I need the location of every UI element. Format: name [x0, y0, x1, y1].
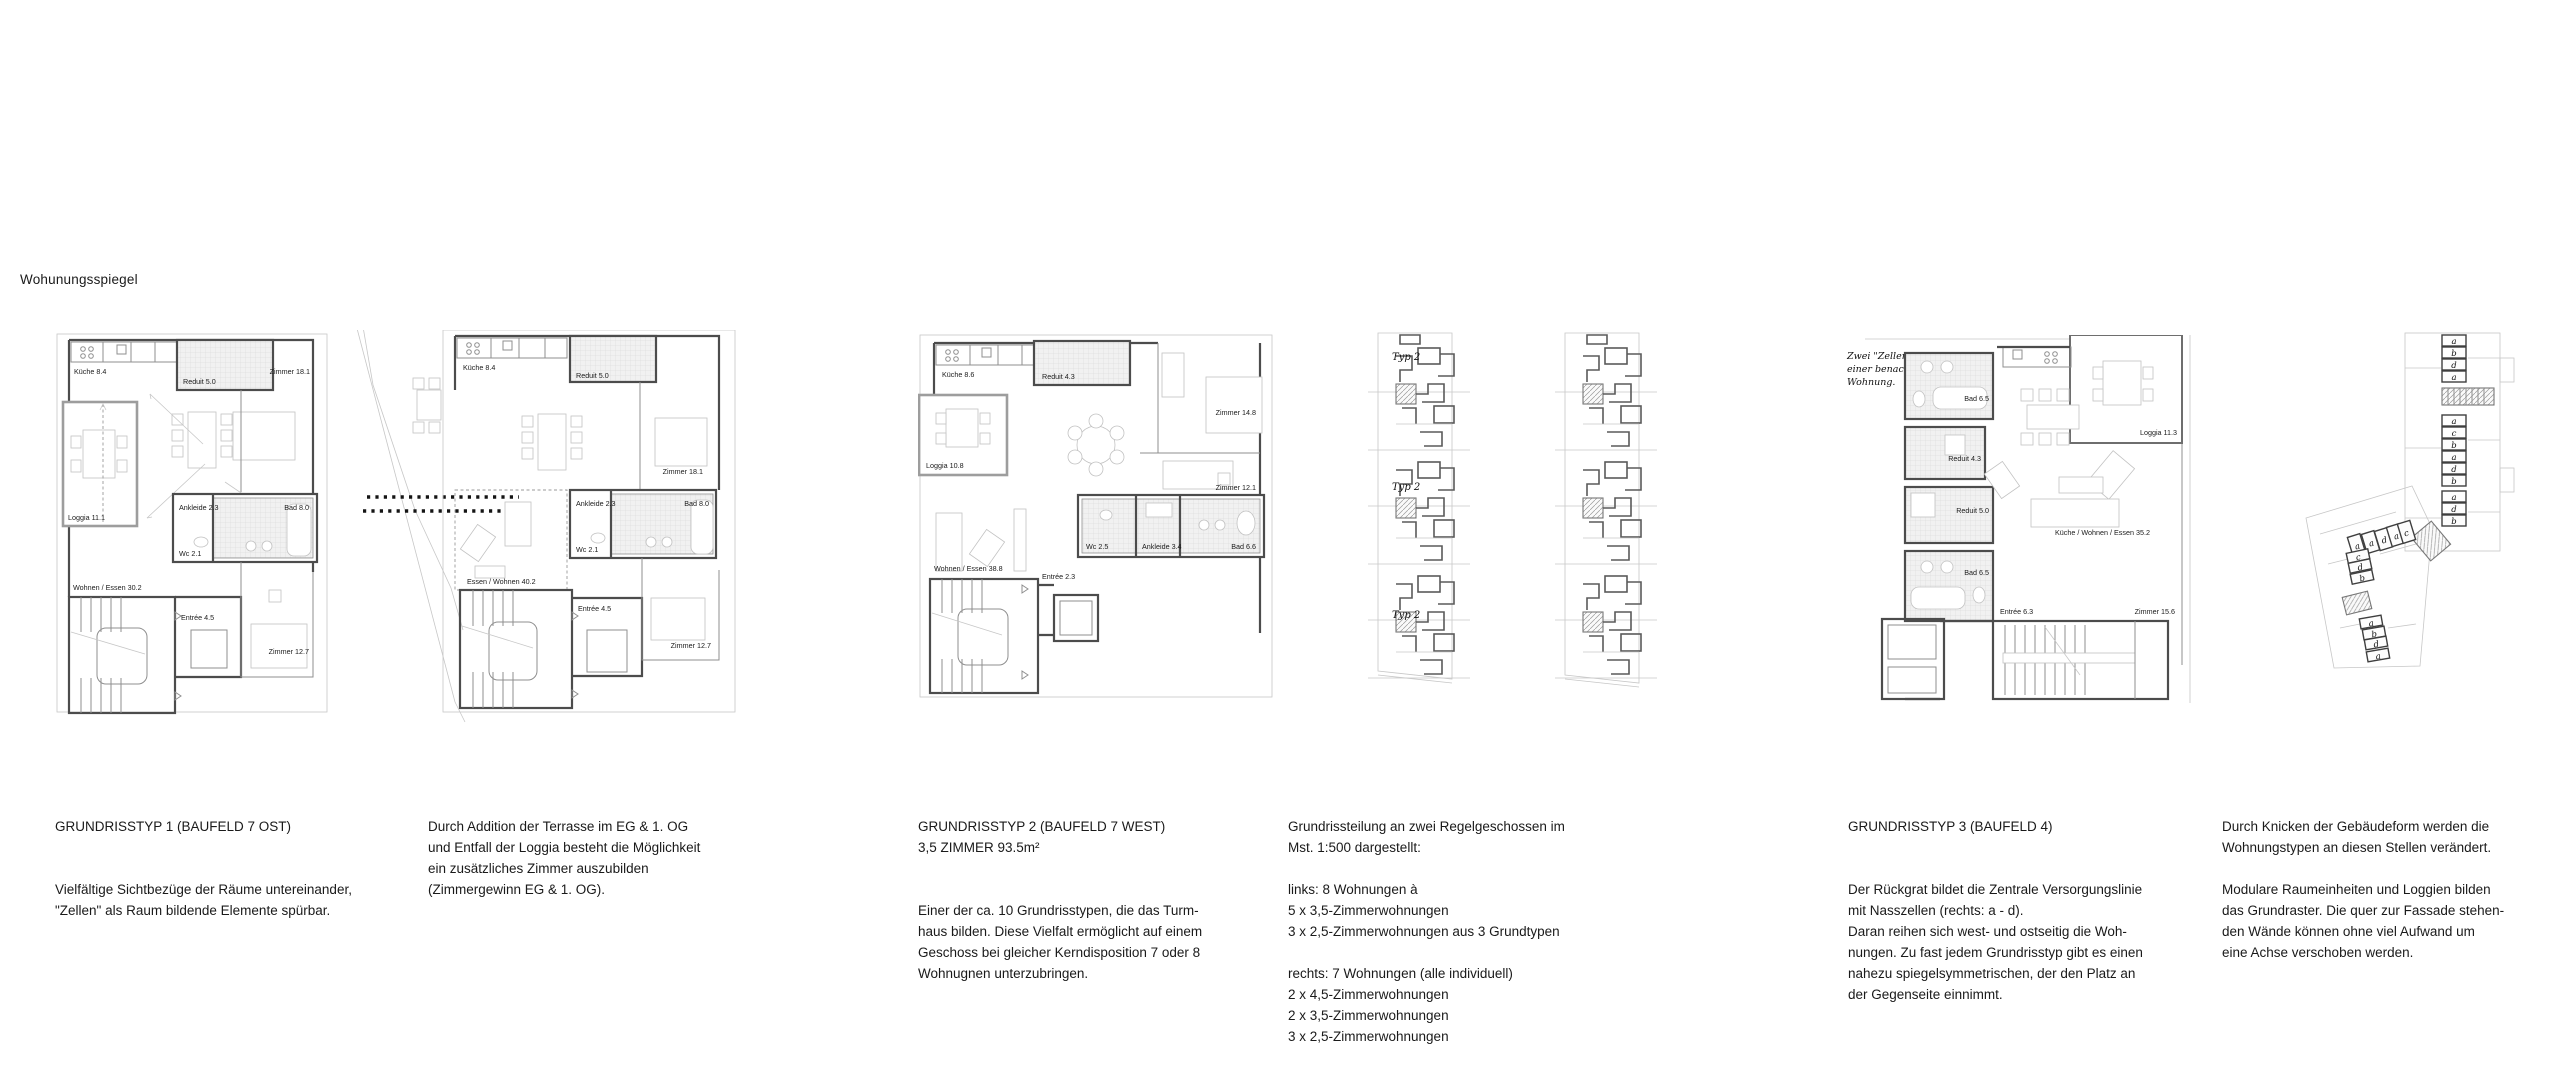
- room-label: Zimmer 12.7: [269, 647, 309, 656]
- room-label: Entrée 4.5: [578, 604, 611, 613]
- svg-text:d: d: [2451, 505, 2457, 515]
- room-label: Wc 2.5: [1086, 542, 1108, 551]
- room-label: Zimmer 18.1: [270, 367, 310, 376]
- room-label: Wohnen / Essen 38.8: [934, 564, 1003, 573]
- room-label: Ankleide 3.4: [1142, 542, 1182, 551]
- presentation-sheet: Wohunungsspiegel Küche 8.4 Reduit 5.0 Zi…: [0, 0, 2560, 1070]
- room-label: Bad 6.6: [1231, 542, 1256, 551]
- typ-label: Typ 2: [1392, 352, 1420, 363]
- room-label: Reduit 5.0: [183, 377, 216, 386]
- room-label: Zimmer 12.1: [1216, 483, 1256, 492]
- svg-text:b: b: [2451, 477, 2456, 487]
- caption-grundrisstyp1: GRUNDRISSTYP 1 (BAUFELD 7 OST) Vielfälti…: [55, 795, 435, 942]
- room-label: Entrée 2.3: [1042, 572, 1075, 581]
- room-label: Reduit 4.3: [1948, 454, 1981, 463]
- caption-body: Durch Addition der Terrasse im EG & 1. O…: [428, 816, 788, 900]
- caption-title: GRUNDRISSTYP 1 (BAUFELD 7 OST): [55, 816, 435, 837]
- caption-body: Einer der ca. 10 Grundrisstypen, die das…: [918, 900, 1278, 984]
- room-label: Zimmer 12.7: [671, 641, 711, 650]
- caption-title: GRUNDRISSTYP 2 (BAUFELD 7 WEST) 3,5 ZIMM…: [918, 816, 1278, 858]
- svg-text:a: a: [2451, 453, 2456, 463]
- page-title: Wohunungsspiegel: [20, 272, 138, 287]
- svg-text:b: b: [2451, 441, 2456, 451]
- cell-chain-upper: a b d a a c b a d b a d b: [2442, 335, 2494, 527]
- floorplan-grundrisstyp1-variante: Küche 8.4 Reduit 5.0 Zimmer 18.1 Ankleid…: [355, 330, 737, 730]
- room-label: Loggia 10.8: [926, 461, 964, 470]
- floorplan-grundrisstyp1: Küche 8.4 Reduit 5.0 Zimmer 18.1 Loggia …: [55, 332, 330, 715]
- caption-body: Der Rückgrat bildet die Zentrale Versorg…: [1848, 879, 2218, 1005]
- room-label: Küche 8.6: [942, 370, 974, 379]
- caption-grundrisstyp2: GRUNDRISSTYP 2 (BAUFELD 7 WEST) 3,5 ZIMM…: [918, 795, 1278, 1005]
- svg-text:a: a: [2451, 337, 2456, 347]
- room-label: Wc 2.1: [576, 545, 598, 554]
- room-label: Wc 2.1: [179, 549, 201, 558]
- room-label: Zimmer 15.6: [2135, 607, 2175, 616]
- typ-label: Typ 2: [1392, 610, 1420, 621]
- svg-text:d: d: [2451, 465, 2457, 475]
- room-label: Ankleide 2.3: [179, 503, 219, 512]
- svg-text:b: b: [2451, 517, 2456, 527]
- room-label: Zimmer 18.1: [663, 467, 703, 476]
- room-label: Zimmer 14.8: [1216, 408, 1256, 417]
- room-label: Bad 6.5: [1964, 394, 1989, 403]
- floorplan-bent-building: a b d a a c b a d b a d b a a d a c c: [2300, 328, 2560, 688]
- caption-geknickte-form: Durch Knicken der Gebäudeform werden die…: [2222, 795, 2560, 984]
- room-label: Reduit 5.0: [576, 371, 609, 380]
- room-label: Bad 8.0: [284, 503, 309, 512]
- room-label: Ankleide 2.3: [576, 499, 616, 508]
- room-label: Loggia 11.1: [68, 513, 105, 522]
- room-label: Reduit 5.0: [1956, 506, 1989, 515]
- room-label: Bad 8.0: [684, 499, 709, 508]
- caption-regelgeschosse: Grundrissteilung an zwei Regelgeschossen…: [1288, 795, 1678, 1068]
- svg-text:b: b: [2451, 349, 2456, 359]
- svg-text:a: a: [2451, 417, 2456, 427]
- floorplan-grundrisstyp2: Küche 8.6 Reduit 4.3 Zimmer 14.8 Loggia …: [918, 333, 1282, 703]
- room-label: Bad 6.5: [1964, 568, 1989, 577]
- caption-body: Grundrissteilung an zwei Regelgeschossen…: [1288, 816, 1678, 1047]
- floorplan-grundrisstyp3: Bad 6.5 Reduit 4.3 Reduit 5.0 Bad 6.5 Lo…: [1845, 335, 2195, 715]
- room-label: Reduit 4.3: [1042, 372, 1075, 381]
- caption-title: GRUNDRISSTYP 3 (BAUFELD 4): [1848, 816, 2218, 837]
- svg-text:d: d: [2451, 361, 2457, 371]
- typ-label: Typ 2: [1392, 482, 1420, 493]
- room-label: Wohnen / Essen 30.2: [73, 583, 142, 592]
- svg-text:a: a: [2451, 493, 2456, 503]
- room-label: Küche 8.4: [463, 363, 495, 372]
- room-label: Küche / Wohnen / Essen 35.2: [2055, 528, 2150, 537]
- room-label: Entrée 4.5: [181, 613, 214, 622]
- caption-grundrisstyp3: GRUNDRISSTYP 3 (BAUFELD 4) Der Rückgrat …: [1848, 795, 2218, 1026]
- caption-terrasse-variante: Durch Addition der Terrasse im EG & 1. O…: [428, 795, 788, 921]
- room-label: Essen / Wohnen 40.2: [467, 577, 536, 586]
- cell-chain-lower: a a d a c c d b a b d a: [2346, 520, 2415, 662]
- svg-text:c: c: [2452, 429, 2457, 439]
- room-label: Entrée 6.3: [2000, 607, 2033, 616]
- svg-text:a: a: [2451, 373, 2456, 383]
- caption-body: Vielfältige Sichtbezüge der Räume untere…: [55, 879, 435, 921]
- room-label: Loggia 11.3: [2140, 428, 2177, 437]
- room-label: Küche 8.4: [74, 367, 106, 376]
- caption-body: Durch Knicken der Gebäudeform werden die…: [2222, 816, 2560, 963]
- tower-floorplans: Typ 2 Typ 2 Typ 2: [1360, 330, 1660, 692]
